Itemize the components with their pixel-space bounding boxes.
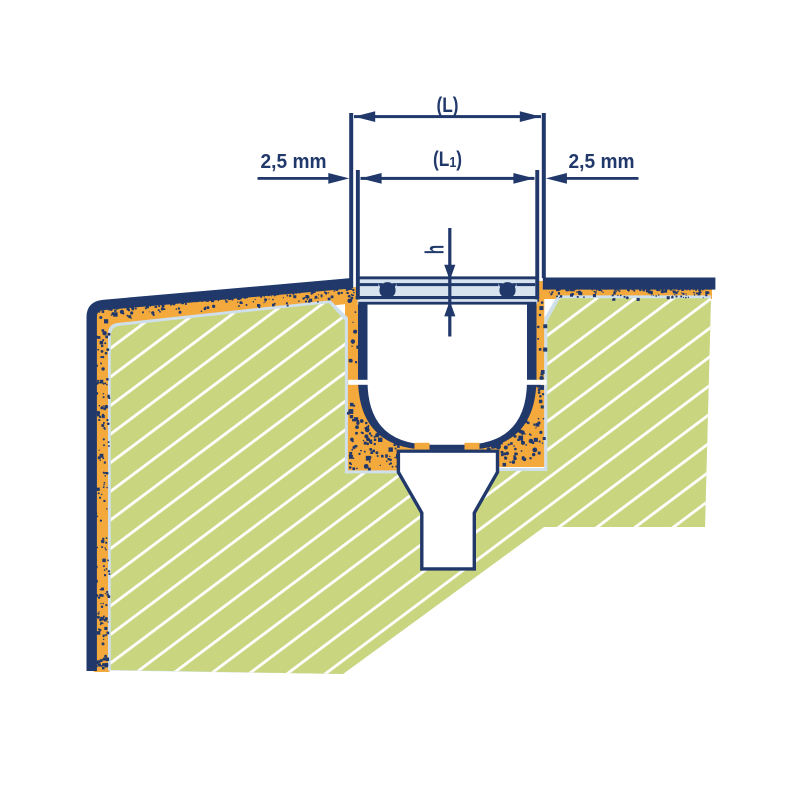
svg-text:(L1): (L1) xyxy=(433,148,462,171)
svg-text:2,5 mm: 2,5 mm xyxy=(261,151,327,173)
svg-text:h: h xyxy=(422,245,450,254)
svg-text:2,5 mm: 2,5 mm xyxy=(569,151,635,173)
svg-text:(L): (L) xyxy=(437,94,459,117)
